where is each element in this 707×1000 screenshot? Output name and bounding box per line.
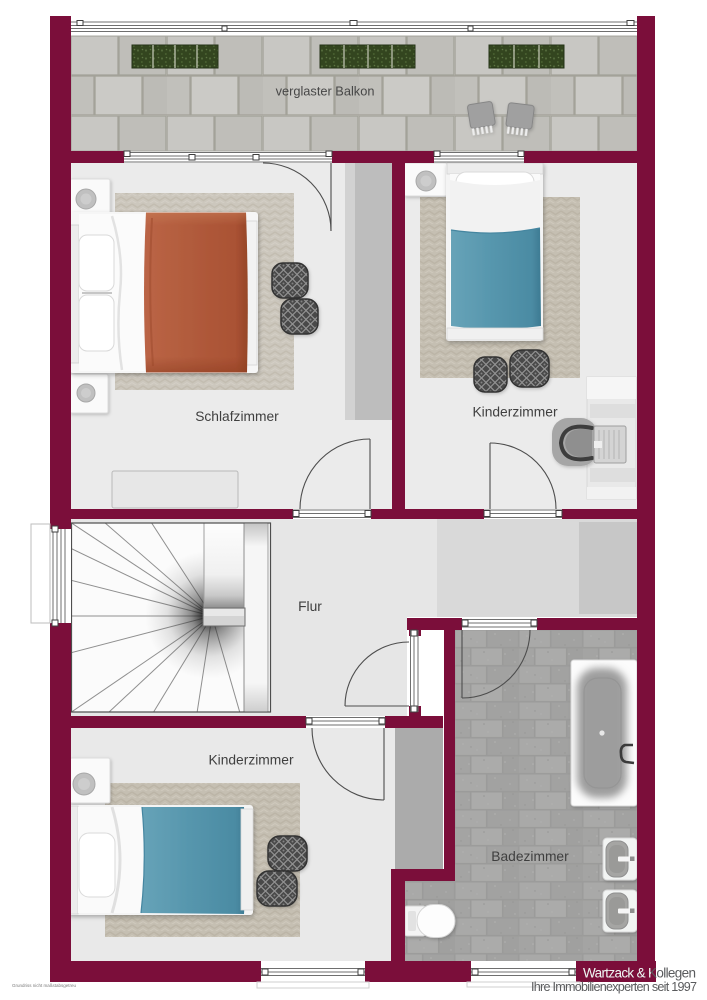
svg-text:Badezimmer: Badezimmer xyxy=(491,849,569,864)
svg-text:Schlafzimmer: Schlafzimmer xyxy=(195,409,279,424)
svg-text:Kinderzimmer: Kinderzimmer xyxy=(208,753,294,768)
svg-text:Kinderzimmer: Kinderzimmer xyxy=(472,405,558,420)
svg-text:Grundriss nicht maßstabsgetreu: Grundriss nicht maßstabsgetreu xyxy=(12,983,77,988)
svg-text:verglaster Balkon: verglaster Balkon xyxy=(276,84,375,99)
svg-text:Ihre Immobilienexperten seit 1: Ihre Immobilienexperten seit 1997 xyxy=(531,980,697,994)
svg-text:Flur: Flur xyxy=(298,599,322,614)
